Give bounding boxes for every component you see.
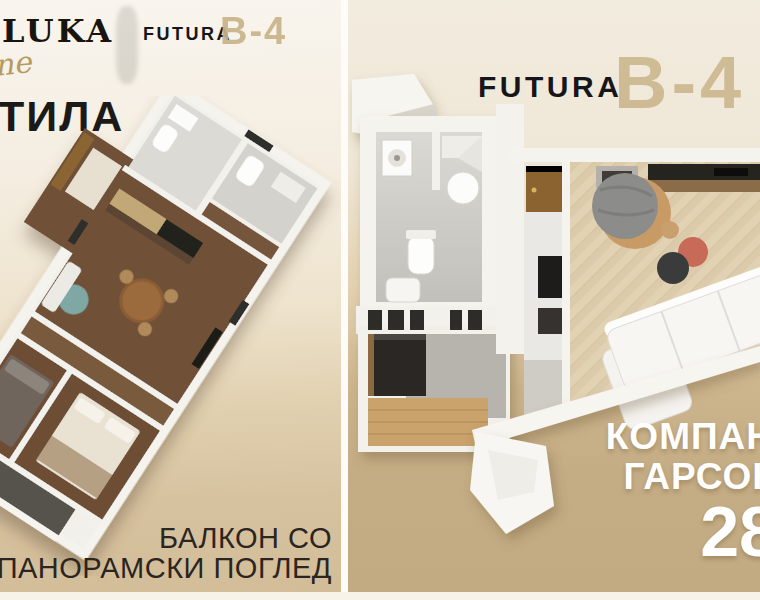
panel-divider — [341, 0, 348, 592]
unit-label-b4: B-4 — [220, 10, 287, 53]
bottom-strip — [0, 592, 760, 600]
caption-line2: ГАРСОН — [612, 458, 760, 495]
real-estate-poster: LUKA ne FUTURA B-4 ТИЛА — [0, 0, 760, 600]
area-number: 28 — [610, 497, 760, 567]
oven — [538, 256, 562, 298]
caption-balcony: БАЛКОН СО ПАНОРАМСКИ ПОГЛЕД — [57, 523, 332, 584]
dark-pouf — [657, 252, 689, 284]
floorplan-3d-render — [0, 96, 341, 576]
left-panel-3d-floorplan: LUKA ne FUTURA B-4 ТИЛА — [0, 0, 341, 592]
round-grey-rug — [592, 173, 658, 239]
brand-logo-script: ne — [0, 44, 33, 83]
right-panel-2d-floorplan: FUTURA B-4 — [348, 0, 760, 592]
dark-wardrobe — [374, 334, 426, 396]
caption-line1: БАЛКОН СО — [57, 523, 332, 554]
futura-logo: FUTURA — [143, 24, 232, 45]
caption-line1: КОМПАН — [606, 418, 760, 455]
toilet — [408, 236, 434, 274]
shower-tray — [386, 278, 420, 302]
bathroom — [360, 116, 498, 316]
round-sink — [447, 172, 479, 204]
wood-stool — [661, 221, 679, 239]
tall-wood-cabinet — [526, 166, 562, 212]
window-band — [356, 306, 502, 334]
caption-apartment: КОМПАН ГАРСОН 28 — [596, 418, 760, 567]
brand-watermark — [116, 6, 138, 84]
caption-line2: ПАНОРАМСКИ ПОГЛЕД — [0, 553, 332, 584]
